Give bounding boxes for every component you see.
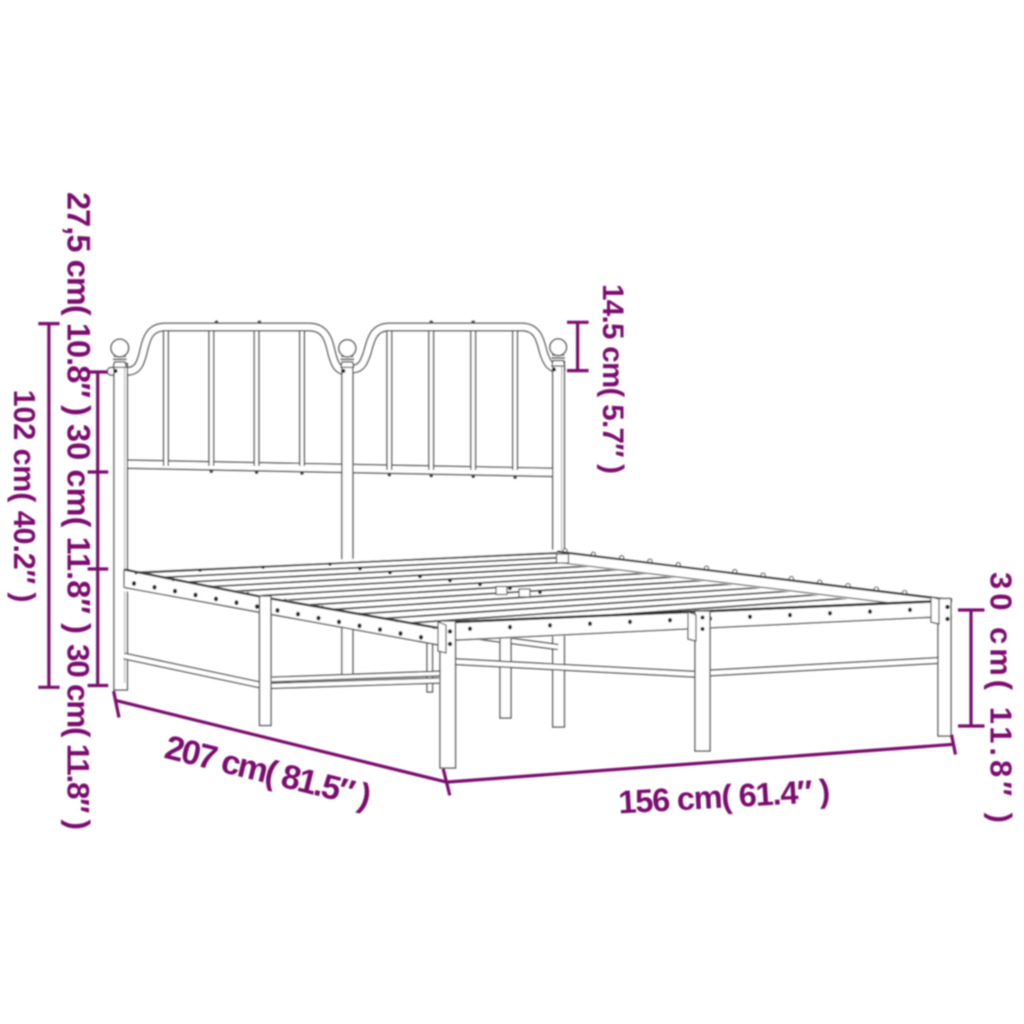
- svg-text:30 cm( 11.8″ ): 30 cm( 11.8″ ): [61, 644, 97, 830]
- svg-text:30 cm( 11.8″ ): 30 cm( 11.8″ ): [61, 424, 97, 634]
- svg-text:27,5 cm( 10.8″ ): 27,5 cm( 10.8″ ): [61, 192, 97, 416]
- svg-text:14.5 cm( 5.7″ ): 14.5 cm( 5.7″ ): [596, 284, 629, 474]
- svg-text:102 cm( 40.2″ ): 102 cm( 40.2″ ): [7, 390, 41, 603]
- svg-text:30 cm( 11.8″ ): 30 cm( 11.8″ ): [984, 572, 1019, 823]
